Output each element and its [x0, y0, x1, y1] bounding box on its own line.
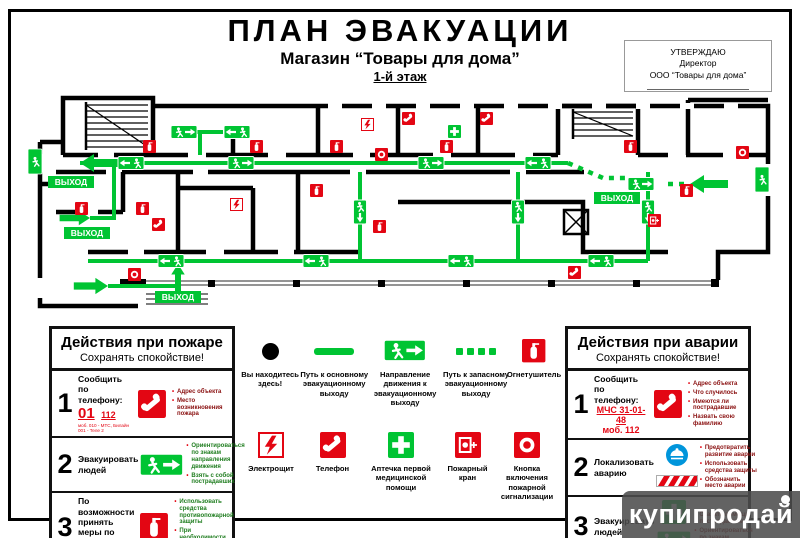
accident-step-2: 2 Локализовать аварию	[568, 440, 748, 497]
exit-door-icon	[755, 167, 769, 192]
extinguisher-icon	[680, 184, 693, 197]
extinguisher-icon	[624, 140, 637, 153]
watermark-dot	[781, 495, 790, 504]
you-are-here-icon	[262, 343, 279, 360]
approval-line3: ООО “Товары для дома”	[625, 70, 771, 81]
first-aid-icon	[388, 430, 414, 460]
legend-item: Пожарный кран	[440, 430, 496, 483]
accident-step-1: 1 Сообщить по телефону: МЧС 31-01-48 моб…	[568, 371, 748, 440]
emergency-phone-number: МЧС 31-01-48	[594, 405, 648, 425]
exit-sign-icon	[384, 336, 426, 366]
extinguisher-icon	[522, 336, 546, 366]
exit-sign-icon	[140, 454, 184, 476]
approval-line2: Директор	[625, 58, 771, 69]
fire-phone-number: 01	[78, 405, 95, 422]
extinguisher-icon	[310, 184, 323, 197]
exit-arrow-down	[171, 264, 185, 293]
direction-sign-left	[448, 255, 474, 268]
direction-sign-left	[224, 126, 250, 139]
direction-sign-down	[354, 200, 367, 224]
legend-row-2: Электрощит Телефон Аптечка первой медици…	[240, 430, 558, 502]
extinguisher-icon	[330, 140, 343, 153]
direction-sign-down	[512, 200, 525, 224]
fire-step-1: 1 Сообщить по телефону: 01 112 моб. 010 …	[52, 371, 232, 438]
first-aid-icon	[448, 125, 461, 138]
approval-box: УТВЕРЖДАЮ Директор ООО “Товары для дома”	[624, 40, 772, 92]
legend-item: Вы находитесь здесь!	[240, 336, 300, 389]
direction-sign-left	[525, 157, 551, 170]
legend-row-1: Вы находитесь здесь! Путь к основному эв…	[240, 336, 558, 408]
phone-icon	[320, 430, 346, 460]
display-counter	[120, 279, 719, 287]
extinguisher-icon	[136, 202, 149, 215]
direction-sign-left	[588, 255, 614, 268]
fire-alarm-button-icon	[128, 268, 141, 281]
legend-item: Аптечка первой медицинской помощи	[363, 430, 439, 492]
electrical-panel-icon	[258, 430, 284, 460]
fire-box-header: Действия при пожаре Сохранять спокойстви…	[52, 329, 232, 371]
exit-sign-label	[594, 192, 640, 204]
direction-sign-right	[228, 157, 254, 170]
main-route-line-icon	[314, 348, 354, 355]
exit-arrow-spare	[690, 175, 728, 193]
watermark: купипродай	[622, 491, 800, 538]
electrical-panel-icon	[362, 119, 374, 131]
barrier-tape-icon	[656, 474, 698, 492]
legend-item: Кнопка включения пожарной сигнализации	[496, 430, 558, 502]
signature-line	[647, 88, 749, 90]
floor-plan: ВЫХОД	[28, 92, 772, 324]
extinguisher-icon	[136, 513, 172, 538]
exit-sign-label	[64, 227, 110, 239]
direction-sign-right	[628, 178, 654, 191]
electrical-panel-icon	[231, 199, 243, 211]
direction-sign-left	[118, 157, 144, 170]
phone-icon	[134, 390, 170, 418]
fire-alarm-button-icon	[375, 148, 388, 161]
phone-icon	[568, 266, 581, 279]
spare-route-dots-icon	[456, 348, 496, 355]
legend-item: Телефон	[303, 430, 363, 473]
direction-sign-right	[418, 157, 444, 170]
phone-icon	[152, 218, 165, 231]
legend-item: Путь к основному эвакуационному выходу	[300, 336, 368, 398]
fire-actions-box: Действия при пожаре Сохранять спокойстви…	[49, 326, 235, 538]
extinguisher-icon	[373, 220, 386, 233]
accident-box-header: Действия при аварии Сохранять спокойстви…	[568, 329, 748, 371]
staircase-right	[573, 109, 633, 139]
extinguisher-icon	[75, 202, 88, 215]
direction-sign-left	[158, 255, 184, 268]
extinguisher-icon	[250, 140, 263, 153]
extinguisher-icon	[143, 140, 156, 153]
fire-hose-icon	[455, 430, 481, 460]
legend-item: Путь к запасному эвакуационному выходу	[442, 336, 510, 398]
legend-item: Электрощит	[240, 430, 302, 473]
fire-alarm-button-icon	[514, 430, 540, 460]
watermark-text: купипродай	[629, 499, 793, 530]
fire-hose-icon	[648, 214, 661, 227]
staircase-left	[86, 102, 148, 150]
fire-step-3: 3 По возможности принять меры по тушению…	[52, 493, 232, 538]
protective-helmet-icon	[665, 443, 689, 472]
legend-item: Огнетушитель	[510, 336, 558, 379]
walls	[40, 98, 768, 306]
phone-icon	[650, 390, 686, 418]
fire-alarm-button-icon	[736, 146, 749, 159]
fire-step-2: 2 Эвакуировать людей Ориентироваться по …	[52, 438, 232, 493]
phone-icon	[402, 112, 415, 125]
extinguisher-icon	[440, 140, 453, 153]
approval-line1: УТВЕРЖДАЮ	[625, 47, 771, 58]
direction-sign-right	[171, 126, 197, 139]
legend-item: Направление движения к эвакуационному вы…	[368, 336, 442, 408]
direction-sign-left	[303, 255, 329, 268]
exit-sign-label	[48, 176, 94, 188]
exit-door-icon	[28, 149, 42, 174]
phone-icon	[480, 112, 493, 125]
exit-arrow-bottom-left	[74, 278, 108, 294]
legend: Вы находитесь здесь! Путь к основному эв…	[240, 336, 558, 502]
exit-sign-label	[155, 291, 201, 303]
evacuation-plan-sheet: ПЛАН ЭВАКУАЦИИ Магазин “Товары для дома”…	[0, 0, 800, 538]
